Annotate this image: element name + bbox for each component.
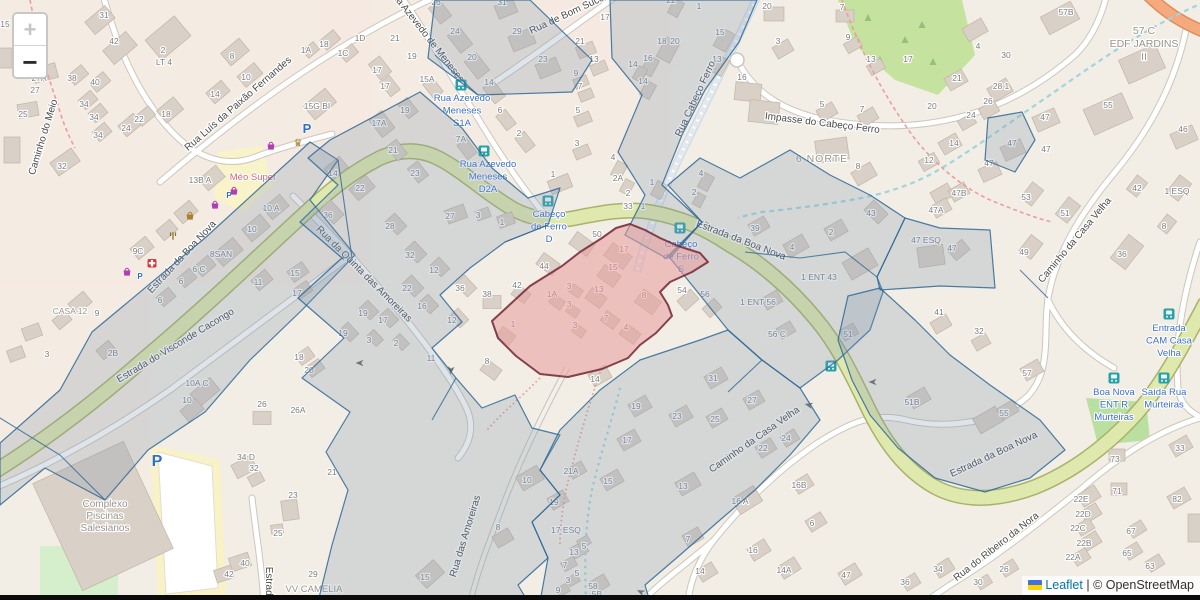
- parking-icon: P: [152, 453, 163, 470]
- house-number: 2A: [613, 173, 624, 183]
- house-number: 32: [974, 326, 984, 336]
- house-number: 33: [623, 201, 633, 211]
- house-number: 8: [1162, 221, 1167, 231]
- parcel-polygon[interactable]: [985, 112, 1035, 172]
- house-number: LT 4: [156, 57, 172, 67]
- house-number: 6: [810, 518, 815, 528]
- house-number: 8: [485, 356, 490, 366]
- leaflet-link[interactable]: Leaflet: [1045, 578, 1083, 592]
- house-number: 26A: [290, 405, 305, 415]
- house-number: 10: [241, 72, 251, 82]
- house-number: 63: [1145, 561, 1155, 571]
- house-number: 47B: [951, 188, 966, 198]
- house-number: 6: [498, 105, 503, 115]
- house-number: 25: [273, 528, 283, 538]
- house-number: 15G BI: [304, 101, 330, 111]
- house-number: 65: [1122, 548, 1132, 558]
- house-number: 34: [93, 130, 103, 140]
- house-number: 22: [134, 114, 144, 124]
- house-number: 25: [18, 109, 28, 119]
- house-number: 36: [1117, 249, 1127, 259]
- house-number: 14: [695, 566, 705, 576]
- house-number: 14: [949, 138, 959, 148]
- house-number: 57: [1022, 368, 1032, 378]
- house-number: 34: [89, 112, 99, 122]
- house-number: 47: [1040, 112, 1050, 122]
- house-number: 21: [390, 33, 400, 43]
- place-label: 57 C: [1133, 25, 1156, 37]
- house-number: 24: [966, 110, 976, 120]
- pharmacy-icon: [148, 259, 157, 268]
- house-number: 40: [240, 558, 250, 568]
- house-number: 20: [927, 101, 937, 111]
- zoom-control: + −: [12, 12, 48, 79]
- bus-stop-label: Murteiras: [1094, 412, 1134, 423]
- bus-stop-icon: [1159, 373, 1170, 384]
- house-number: 7: [860, 104, 865, 114]
- house-number: 34 D: [237, 452, 255, 462]
- house-number: 42: [224, 569, 234, 579]
- house-number: 17: [903, 54, 913, 64]
- house-number: 8: [230, 51, 235, 61]
- house-number: 3: [575, 138, 580, 148]
- house-number: 1: [551, 169, 556, 179]
- house-number: 16: [737, 72, 747, 82]
- house-number: 57B: [1058, 7, 1073, 17]
- house-number: 15A: [419, 74, 434, 84]
- house-number: 17: [372, 65, 382, 75]
- attribution-bar: Leaflet | © OpenStreetMap: [1022, 576, 1200, 595]
- house-number: 7: [840, 2, 845, 12]
- place-label: EDF JARDINS: [1110, 38, 1179, 50]
- house-number: 22C: [1070, 523, 1086, 533]
- house-number: 22E: [1073, 494, 1088, 504]
- house-number: 18: [294, 352, 304, 362]
- house-number: 9: [95, 308, 100, 318]
- house-number: 47: [1041, 144, 1051, 154]
- house-number: 3: [776, 36, 781, 46]
- house-number: 13B A: [189, 175, 212, 185]
- parking-icon: P: [303, 121, 312, 136]
- house-number: 41: [934, 307, 944, 317]
- zoom-in-button[interactable]: +: [14, 14, 46, 46]
- house-number: 2: [626, 188, 631, 198]
- house-number: 42: [1132, 183, 1142, 193]
- house-number: 3: [45, 349, 50, 359]
- house-number: 33: [1175, 443, 1185, 453]
- house-number: 1C: [338, 48, 349, 58]
- house-number: 1 ESQ: [1164, 186, 1189, 196]
- house-number: 67: [1126, 526, 1136, 536]
- house-number: 51: [1060, 208, 1070, 218]
- house-number: 20: [762, 1, 772, 11]
- house-number: 17: [380, 81, 390, 91]
- bus-stop-label: Meneses: [443, 106, 482, 117]
- house-number: 29: [308, 569, 318, 579]
- house-number: 50: [592, 229, 602, 239]
- house-number: 15: [0, 19, 10, 29]
- house-number: 38: [67, 73, 77, 83]
- house-number: 55: [1103, 100, 1113, 110]
- bus-stop-label: D: [546, 234, 553, 245]
- house-number: 30: [1001, 50, 1011, 60]
- house-number: 26: [257, 399, 267, 409]
- house-number: 47A: [928, 205, 943, 215]
- house-number: 71: [1112, 486, 1122, 496]
- house-number: 21: [952, 73, 962, 83]
- bus-stop-label: Murteiras: [1144, 400, 1184, 411]
- house-number: 14A: [776, 565, 791, 575]
- bus-stop-label: Velha: [1157, 348, 1181, 359]
- place-label: CASA 12: [53, 306, 88, 316]
- house-number: 30: [973, 577, 983, 587]
- house-number: 53: [1021, 192, 1031, 202]
- crown-icon: ♛: [294, 138, 303, 149]
- bus-stop-label: Saída Rua: [1142, 387, 1188, 398]
- house-number: 14: [590, 374, 600, 384]
- house-number: 34: [933, 564, 943, 574]
- ukraine-flag-icon: [1028, 580, 1042, 590]
- street-label: Rua do Ribeiro da Nora: [952, 510, 1042, 584]
- place-label: II: [1141, 51, 1147, 63]
- house-number: 22B: [1076, 538, 1091, 548]
- house-number: 73: [1110, 454, 1120, 464]
- parking-icon: P: [137, 272, 143, 281]
- house-number: 16B: [791, 480, 806, 490]
- house-number: 1D: [355, 33, 366, 43]
- house-number: 12: [924, 155, 934, 165]
- house-number: 22D: [1075, 509, 1091, 519]
- house-number: 23: [288, 490, 298, 500]
- svg-text:♛: ♛: [294, 138, 303, 149]
- house-number: 1A: [301, 45, 312, 55]
- house-number: 4: [976, 41, 981, 51]
- house-number: 54: [677, 285, 687, 295]
- house-number: 17: [600, 12, 610, 22]
- house-number: 18: [319, 39, 329, 49]
- house-number: 13: [866, 54, 876, 64]
- bus-stop-icon: [1109, 373, 1120, 384]
- map-svg: 1531422LT 48101427A273840253434342422183…: [0, 0, 1200, 600]
- bus-stop-label: ENT R: [1100, 400, 1128, 411]
- bus-stop-icon: [1164, 309, 1175, 320]
- house-number: 4: [611, 152, 616, 162]
- house-number: 22A: [1065, 552, 1080, 562]
- place-label: Salesianos: [81, 523, 130, 534]
- house-number: 18: [161, 109, 171, 119]
- house-number: 9C: [133, 246, 144, 256]
- house-number: 31: [99, 10, 109, 20]
- place-label: Complexo: [82, 499, 127, 510]
- house-number: 16: [748, 545, 758, 555]
- house-number: 82: [1172, 494, 1182, 504]
- house-number: 19: [407, 51, 417, 61]
- house-number: 27: [30, 85, 40, 95]
- house-number: 49: [1019, 247, 1029, 257]
- house-number: 5: [820, 99, 825, 109]
- house-number: 38: [482, 289, 492, 299]
- house-number: 14: [210, 89, 220, 99]
- house-number: 32: [249, 463, 259, 473]
- house-number: 26: [999, 564, 1009, 574]
- house-number: 47: [841, 570, 851, 580]
- house-number: 24: [121, 123, 131, 133]
- map-canvas[interactable]: 1531422LT 48101427A273840253434342422183…: [0, 0, 1200, 600]
- bus-stop-label: Boa Nova: [1093, 387, 1135, 398]
- house-number: 36: [455, 283, 465, 293]
- house-number: 42: [109, 36, 119, 46]
- house-number: 40: [90, 77, 100, 87]
- house-number: 2: [161, 45, 166, 55]
- house-number: 9: [846, 32, 851, 42]
- house-number: 28 1: [993, 81, 1010, 91]
- bus-stop-label: Entrada: [1152, 323, 1186, 334]
- house-number: 34: [79, 99, 89, 109]
- house-number: 2: [517, 128, 522, 138]
- bottom-black-bar: [0, 595, 1200, 600]
- house-number: 8: [856, 161, 861, 171]
- house-number: 42: [512, 280, 522, 290]
- openstreetmap-link[interactable]: © OpenStreetMap: [1093, 578, 1194, 592]
- attribution-separator: |: [1083, 578, 1093, 592]
- zoom-out-button[interactable]: −: [14, 46, 46, 77]
- house-number: 32: [57, 161, 67, 171]
- bus-stop-label: CAM Casa: [1146, 336, 1193, 347]
- house-number: 26: [983, 96, 993, 106]
- house-number: 44: [539, 261, 549, 271]
- house-number: 36: [900, 577, 910, 587]
- house-number: 46: [1178, 124, 1188, 134]
- house-number: 5: [576, 105, 581, 115]
- place-label: Piscinas: [86, 511, 123, 522]
